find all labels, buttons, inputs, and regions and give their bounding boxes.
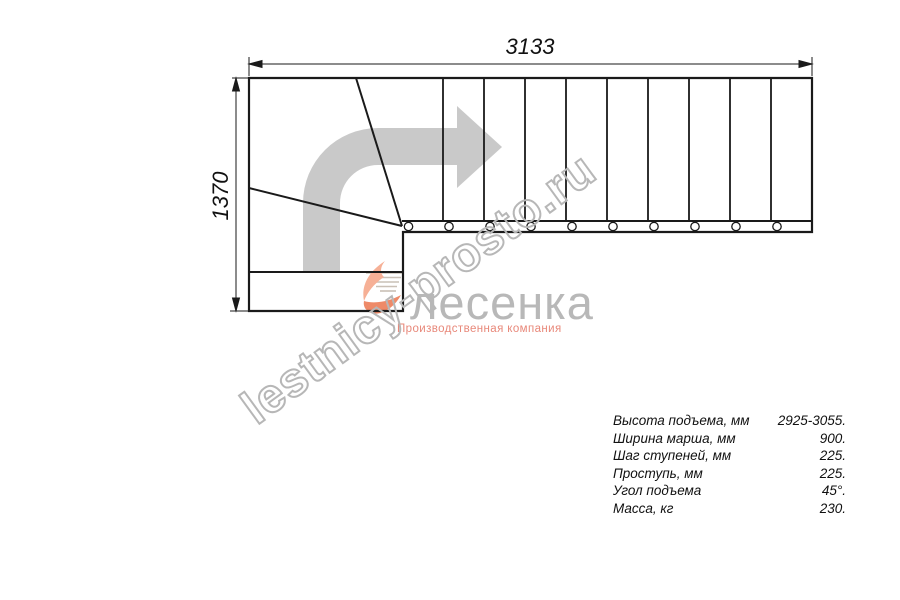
spec-value: 2925-3055. — [778, 412, 846, 430]
spec-label: Угол подъема — [613, 482, 701, 500]
spec-value: 900. — [820, 430, 846, 448]
dimension-width — [249, 57, 812, 76]
spec-value: 225. — [820, 447, 846, 465]
spec-label: Высота подъема, мм — [613, 412, 749, 430]
dimension-width-label: 3133 — [430, 36, 630, 58]
spec-label: Проступь, мм — [613, 465, 703, 483]
stair-drawing-page: 3133 1370 лесенка Производственная компа… — [0, 0, 900, 600]
spec-row-height: Высота подъема, мм 2925-3055. — [613, 412, 846, 430]
spec-value: 230. — [820, 500, 846, 518]
spec-label: Шаг ступеней, мм — [613, 447, 731, 465]
logo-tagline: Производственная компания — [397, 324, 562, 336]
spec-label: Масса, кг — [613, 500, 673, 518]
spec-value: 45°. — [822, 482, 846, 500]
dimension-height-label: 1370 — [210, 172, 232, 221]
spec-row-step-pitch: Шаг ступеней, мм 225. — [613, 447, 846, 465]
spec-row-mass: Масса, кг 230. — [613, 500, 846, 518]
spec-value: 225. — [820, 465, 846, 483]
spec-row-angle: Угол подъема 45°. — [613, 482, 846, 500]
spec-row-march-width: Ширина марша, мм 900. — [613, 430, 846, 448]
spec-label: Ширина марша, мм — [613, 430, 736, 448]
specs-table: Высота подъема, мм 2925-3055. Ширина мар… — [613, 412, 846, 518]
spec-row-tread: Проступь, мм 225. — [613, 465, 846, 483]
